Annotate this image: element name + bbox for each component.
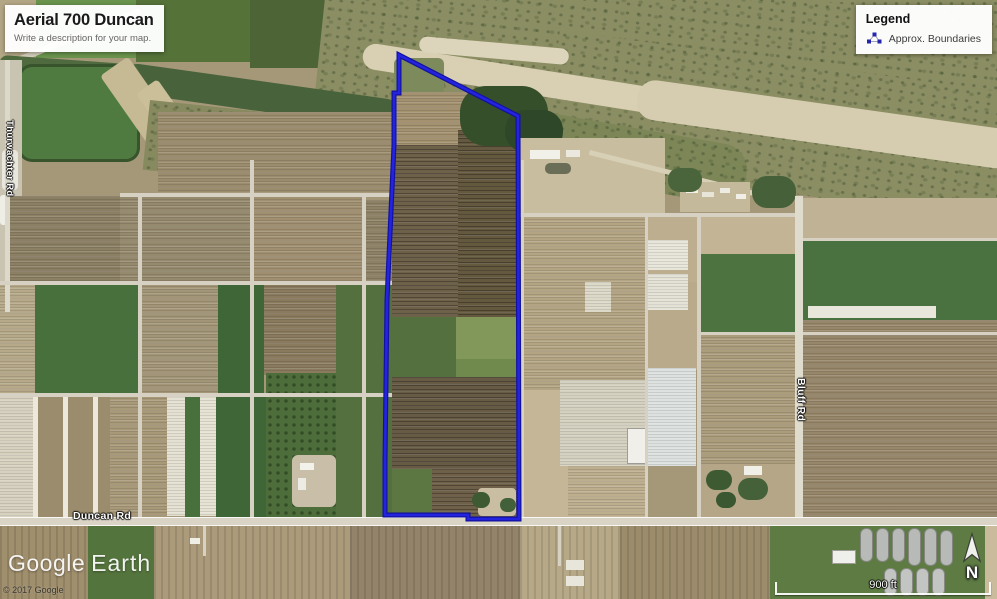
map-patch — [558, 526, 561, 566]
map-patch — [140, 283, 218, 395]
map-patch — [668, 168, 702, 192]
map-patch — [264, 283, 336, 375]
map-patch — [648, 368, 696, 466]
map-patch — [566, 576, 584, 586]
map-patch — [698, 216, 797, 254]
legend-item-label: Approx. Boundaries — [889, 33, 981, 45]
copyright-notice: © 2017 Google — [3, 585, 64, 595]
map-patch — [456, 317, 520, 359]
map-patch — [300, 463, 314, 470]
map-patch — [585, 282, 611, 312]
map-patch — [800, 198, 997, 240]
map-patch — [392, 377, 520, 469]
map-patch — [908, 528, 921, 566]
map-patch — [738, 478, 768, 500]
map-patch — [472, 492, 490, 508]
polygon-vertices-icon — [866, 32, 882, 45]
watermark-earth: Earth — [91, 550, 151, 576]
map-patch — [566, 150, 580, 157]
map-patch — [648, 274, 688, 310]
map-patch — [158, 112, 392, 196]
map-patch — [35, 283, 140, 395]
map-patch — [645, 216, 648, 518]
map-patch — [752, 176, 796, 208]
map-patch — [185, 395, 200, 518]
map-patch — [568, 466, 646, 518]
map-patch — [566, 560, 584, 570]
map-patch — [648, 240, 688, 270]
map-description[interactable]: Write a description for your map. — [14, 33, 154, 44]
map-patch — [736, 194, 746, 199]
map-patch — [394, 58, 444, 94]
map-patch — [800, 238, 997, 241]
map-patch — [298, 478, 306, 490]
legend-item[interactable]: Approx. Boundaries — [866, 32, 981, 45]
map-patch — [706, 470, 732, 490]
map-patch — [0, 281, 392, 285]
road-label-bluff-rd: Bluff Rd — [795, 378, 807, 421]
map-patch — [190, 538, 200, 544]
map-patch — [716, 492, 736, 508]
map-patch — [33, 395, 110, 518]
map-patch — [392, 469, 432, 518]
map-patch — [203, 526, 206, 556]
map-patch — [362, 196, 366, 518]
map-patch — [620, 526, 770, 599]
legend-panel: Legend Approx. Boundaries — [856, 5, 992, 54]
map-patch — [392, 317, 456, 377]
map-viewport[interactable]: Duncan Rd Bluff Rd Thurwachter Rd Aerial… — [0, 0, 997, 599]
map-patch — [252, 196, 364, 283]
map-patch — [250, 160, 254, 518]
scale-bar-label: 900 ft — [777, 579, 989, 591]
map-patch — [698, 334, 797, 464]
map-patch — [500, 498, 516, 512]
map-patch — [0, 517, 997, 526]
map-patch — [520, 213, 800, 217]
map-patch — [924, 528, 937, 566]
map-patch — [458, 130, 520, 317]
map-patch — [167, 397, 185, 516]
map-title-card: Aerial 700 Duncan Write a description fo… — [5, 5, 164, 52]
road-label-thurwachter-rd: Thurwachter Rd — [4, 120, 15, 197]
map-patch — [200, 397, 216, 516]
map-patch — [832, 550, 856, 564]
north-arrow-icon — [952, 531, 992, 567]
map-patch — [530, 150, 560, 159]
map-patch — [892, 528, 905, 562]
map-patch — [795, 196, 803, 526]
map-patch — [6, 196, 120, 283]
map-patch — [702, 192, 714, 197]
legend-title: Legend — [866, 12, 981, 26]
map-patch — [456, 359, 520, 377]
map-patch — [0, 395, 33, 518]
map-patch — [698, 254, 797, 334]
map-patch — [0, 393, 392, 397]
watermark-google: Google — [8, 550, 85, 576]
map-patch — [218, 283, 264, 395]
map-patch — [521, 160, 524, 518]
map-patch — [138, 196, 142, 518]
map-patch — [697, 216, 701, 518]
scale-bar: 900 ft — [775, 582, 991, 595]
map-patch — [520, 216, 645, 390]
map-patch — [364, 200, 392, 283]
map-patch — [808, 306, 936, 318]
map-patch — [876, 528, 889, 562]
google-earth-watermark: GoogleEarth — [8, 550, 151, 577]
map-patch — [698, 332, 997, 335]
map-patch — [860, 528, 873, 562]
map-patch — [744, 466, 762, 475]
page-title: Aerial 700 Duncan — [14, 11, 154, 30]
map-patch — [545, 163, 571, 174]
map-patch — [216, 395, 266, 518]
map-patch — [120, 193, 392, 197]
map-patch — [350, 526, 520, 599]
map-patch — [154, 526, 350, 599]
road-label-duncan-rd: Duncan Rd — [73, 510, 131, 522]
map-patch — [800, 320, 997, 518]
map-patch — [720, 188, 730, 193]
